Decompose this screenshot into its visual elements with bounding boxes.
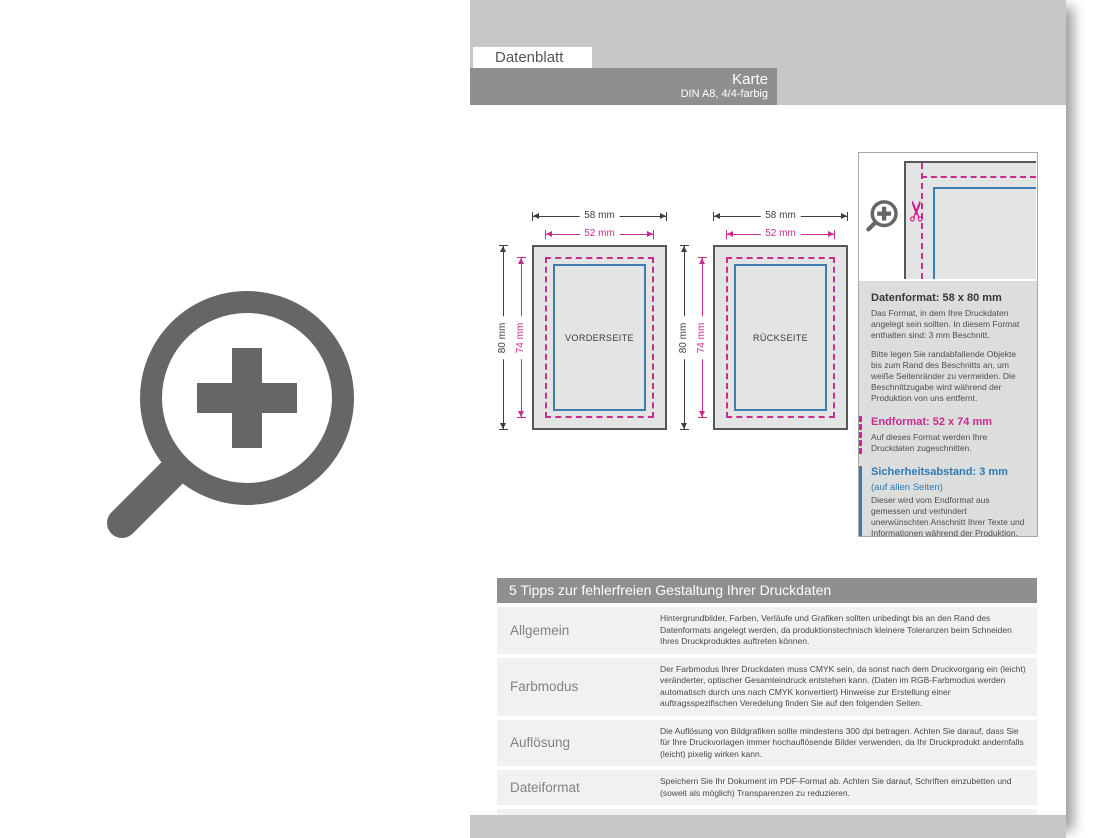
dimension-height-inner: 74 mm <box>514 257 528 418</box>
tip-text: Die Auflösung von Bildgrafiken sollte mi… <box>660 720 1037 767</box>
tips-table: 5 Tipps zur fehlerfreien Gestaltung Ihre… <box>497 578 1037 838</box>
scissors-icon: ✂ <box>904 199 932 222</box>
side-label: RÜCKSEITE <box>734 264 827 411</box>
zoom-plus-icon-small <box>865 199 899 234</box>
safety-margin-paragraph: Dieser wird vom Endformat aus gemessen u… <box>871 495 1026 536</box>
corner-detail-diagram: ✂ <box>859 153 1037 281</box>
dimension-width-outer-label: 58 mm <box>579 210 620 222</box>
tip-text: Speichern Sie Ihr Dokument im PDF-Format… <box>660 770 1037 805</box>
format-info-panel: ✂ Datenformat: 58 x 80 mm Das Format, in… <box>858 152 1038 537</box>
dimension-height-outer-label: 80 mm <box>497 316 509 359</box>
dimension-width-outer: 58 mm <box>532 209 667 223</box>
tip-text: Hintergrundbilder, Farben, Verläufe und … <box>660 607 1037 654</box>
final-format-paragraph: Auf dieses Format werden Ihre Druckdaten… <box>871 432 1026 454</box>
table-row: Auflösung Die Auflösung von Bildgrafiken… <box>497 720 1037 767</box>
product-title: Karte <box>470 71 768 88</box>
dimension-height-outer: 80 mm <box>496 245 510 430</box>
data-format-paragraph: Bitte legen Sie randabfallende Objekte b… <box>871 349 1026 404</box>
table-row: Farbmodus Der Farbmodus Ihrer Druckdaten… <box>497 658 1037 716</box>
dimension-height-inner-label: 74 mm <box>696 316 708 359</box>
dimension-height-outer-label: 80 mm <box>678 316 690 359</box>
tip-label: Dateiformat <box>497 780 660 795</box>
dimension-height-inner: 74 mm <box>695 257 709 418</box>
final-format-section: Endformat: 52 x 74 mm Auf dieses Format … <box>859 416 1026 454</box>
dimension-width-outer-label: 58 mm <box>760 210 801 222</box>
zoom-plus-icon <box>95 283 365 558</box>
safety-line-horizontal <box>933 187 1036 189</box>
dimension-width-inner-label: 52 mm <box>579 228 620 240</box>
safety-margin-section: Sicherheitsabstand: 3 mm (auf allen Seit… <box>859 466 1026 536</box>
safety-margin-subtitle: (auf allen Seiten) <box>871 482 1026 493</box>
footer-band <box>470 815 1066 838</box>
side-label: VORDERSEITE <box>553 264 646 411</box>
tip-label: Auflösung <box>497 735 660 750</box>
dimension-width-inner: 52 mm <box>726 227 835 241</box>
table-row: Allgemein Hintergrundbilder, Farben, Ver… <box>497 607 1037 654</box>
product-subtitle: DIN A8, 4/4-farbig <box>470 88 768 101</box>
dimension-height-inner-label: 74 mm <box>515 316 527 359</box>
bleed-dashed-line-horizontal <box>921 176 1036 178</box>
dimension-width-inner: 52 mm <box>545 227 654 241</box>
datasheet-tab: Datenblatt <box>473 47 592 68</box>
data-format-paragraph: Das Format, in dem Ihre Druckdaten angel… <box>871 308 1026 341</box>
format-info-text: Datenformat: 58 x 80 mm Das Format, in d… <box>859 281 1037 536</box>
safety-margin-title: Sicherheitsabstand: 3 mm <box>871 466 1026 479</box>
tip-label: Farbmodus <box>497 679 660 694</box>
tips-header: 5 Tipps zur fehlerfreien Gestaltung Ihre… <box>497 578 1037 603</box>
tip-text: Der Farbmodus Ihrer Druckdaten muss CMYK… <box>660 658 1037 716</box>
front-side-diagram: VORDERSEITE 58 mm 52 mm 80 mm 74 mm <box>495 205 675 437</box>
data-format-title: Datenformat: 58 x 80 mm <box>871 292 1026 305</box>
back-side-diagram: RÜCKSEITE 58 mm 52 mm 80 mm 74 mm <box>676 205 856 437</box>
datasheet-page: Datenblatt Karte DIN A8, 4/4-farbig VORD… <box>470 0 1066 838</box>
product-title-bar: Karte DIN A8, 4/4-farbig <box>470 68 777 105</box>
datasheet-viewer: Datenblatt Karte DIN A8, 4/4-farbig VORD… <box>0 0 1117 838</box>
dimension-width-inner-label: 52 mm <box>760 228 801 240</box>
data-format-section: Datenformat: 58 x 80 mm Das Format, in d… <box>871 292 1026 404</box>
table-row: Dateiformat Speichern Sie Ihr Dokument i… <box>497 770 1037 805</box>
dimension-height-outer: 80 mm <box>677 245 691 430</box>
tip-label: Allgemein <box>497 623 660 638</box>
dimension-width-outer: 58 mm <box>713 209 848 223</box>
final-format-title: Endformat: 52 x 74 mm <box>871 416 1026 429</box>
